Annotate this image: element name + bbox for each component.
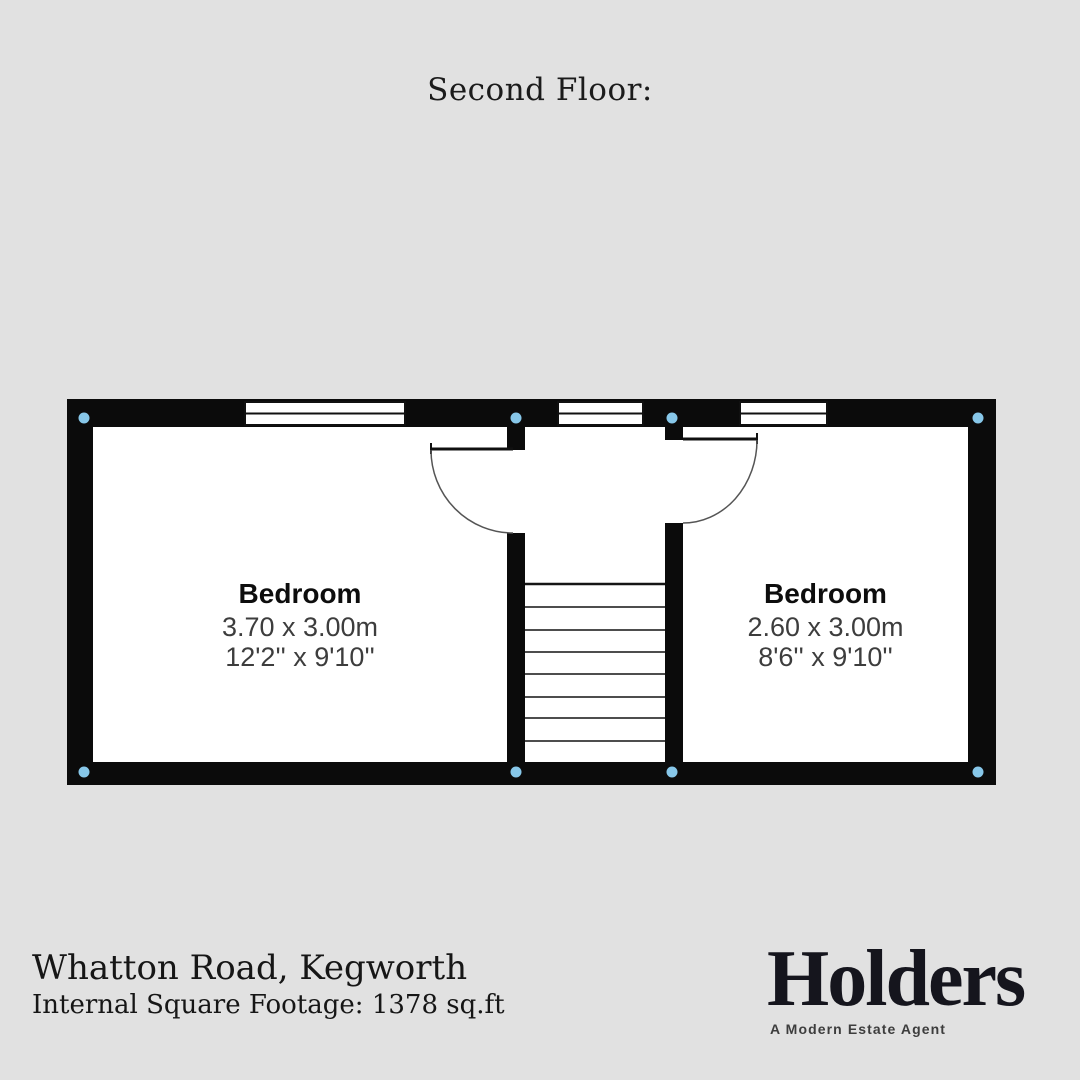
room-dimensions-metric: 3.70 x 3.00m — [93, 612, 507, 642]
floorplan-drawing — [0, 0, 1080, 1080]
room-dimensions-imperial: 8'6'' x 9'10'' — [683, 642, 968, 672]
corner-marker — [79, 413, 90, 424]
room-label-bedroom-left: Bedroom 3.70 x 3.00m 12'2'' x 9'10'' — [93, 576, 507, 672]
corner-marker — [667, 767, 678, 778]
room-dimensions-imperial: 12'2'' x 9'10'' — [93, 642, 507, 672]
window-left — [245, 402, 405, 425]
corner-marker — [79, 767, 90, 778]
window-middle — [558, 402, 643, 425]
corner-marker — [973, 413, 984, 424]
door-opening-left — [507, 450, 525, 533]
window-right — [740, 402, 827, 425]
footer: Whatton Road, Kegworth Internal Square F… — [32, 948, 505, 1022]
floorplan-page: Second Floor: — [0, 0, 1080, 1080]
room-dimensions-metric: 2.60 x 3.00m — [683, 612, 968, 642]
square-footage: Internal Square Footage: 1378 sq.ft — [32, 988, 505, 1022]
landing-stairwell-floor — [525, 427, 665, 762]
room-name: Bedroom — [683, 576, 968, 612]
door-opening-right — [665, 440, 683, 523]
logo-wordmark: Holders — [767, 938, 1024, 1020]
room-name: Bedroom — [93, 576, 507, 612]
corner-marker — [511, 413, 522, 424]
logo-tagline: A Modern Estate Agent — [770, 1021, 1024, 1037]
corner-marker — [973, 767, 984, 778]
property-address: Whatton Road, Kegworth — [32, 948, 505, 988]
room-label-bedroom-right: Bedroom 2.60 x 3.00m 8'6'' x 9'10'' — [683, 576, 968, 672]
corner-marker — [667, 413, 678, 424]
corner-marker — [511, 767, 522, 778]
estate-agent-logo: Holders A Modern Estate Agent — [767, 938, 1024, 1037]
